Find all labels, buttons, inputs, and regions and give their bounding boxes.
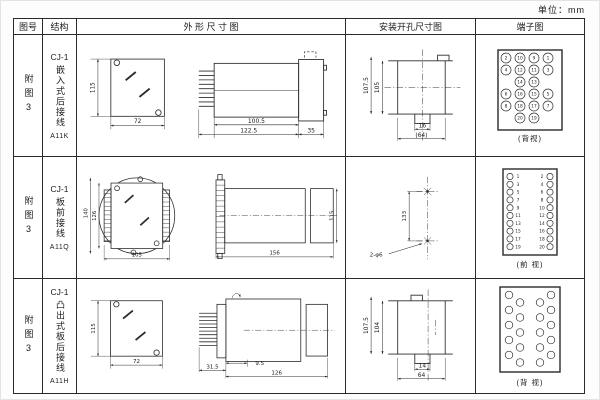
view-label: (前 视) xyxy=(516,259,543,270)
relay-model: CJ-1 xyxy=(51,287,69,297)
terminal-number: 12 xyxy=(539,213,545,219)
screw-icon xyxy=(154,349,159,354)
terminal-number: 13 xyxy=(531,79,537,85)
outline-dimensions-cell: 115 72 9.5 31.5 126 xyxy=(77,279,346,393)
mount-tab xyxy=(324,110,327,115)
terminal-number: 5 xyxy=(547,91,550,97)
dim-label-pin-length: 31.5 xyxy=(206,365,219,371)
terminal-circle xyxy=(507,220,513,226)
dim-label-body-length: 126 xyxy=(271,370,282,376)
terminal-number: 6 xyxy=(541,189,544,195)
dim-label-notch-width: 16 xyxy=(418,123,426,129)
relay-case-front xyxy=(111,59,165,116)
mounting-type: 板前接线 xyxy=(55,197,64,239)
terminal-circle xyxy=(505,351,513,359)
terminal-number: 10 xyxy=(539,205,545,211)
dim-label-inner-height: 105 xyxy=(375,81,381,92)
dim-label-width: 72 xyxy=(134,119,142,125)
terminal-circle xyxy=(547,235,553,241)
terminal-number: 17 xyxy=(515,236,521,242)
terminal-circle xyxy=(516,298,524,306)
terminal-number: 11 xyxy=(515,213,521,219)
hole-spec-label: 2-φ6 xyxy=(369,252,382,258)
figure-number: 附图3 xyxy=(24,74,33,117)
terminal-circle xyxy=(507,181,513,187)
screw-icon xyxy=(114,301,119,306)
screw-icon xyxy=(138,177,143,182)
relay-model: CJ-1 xyxy=(51,52,69,62)
terminal-number: 16 xyxy=(539,228,545,234)
header-mounting-holes: 安装开孔尺寸图 xyxy=(346,19,476,35)
terminal-circle xyxy=(516,358,524,366)
terminal-number: 8 xyxy=(541,197,544,203)
terminal-circle xyxy=(547,173,553,179)
mounting-type: 嵌入式后接线 xyxy=(55,65,64,128)
terminal-circle xyxy=(507,204,513,210)
terminal-circle xyxy=(505,336,513,344)
terminal-pins xyxy=(199,71,214,106)
terminal-number: 15 xyxy=(531,91,537,97)
dim-label-inner-height: 126 xyxy=(92,210,98,221)
terminal-circle xyxy=(536,298,544,306)
dim-label-hole-spacing: 133 xyxy=(401,210,407,221)
terminal-number: 14 xyxy=(539,220,545,226)
model-code: A11H xyxy=(50,378,69,385)
outline-side-view: 100.5 122.5 35 xyxy=(193,48,339,144)
structure-cell: CJ-1 嵌入式后接线 A11K xyxy=(43,35,77,157)
terminal-circle xyxy=(505,321,513,329)
relay-model: CJ-1 xyxy=(51,184,69,194)
dim-label-height: 115 xyxy=(91,81,97,92)
terminal-circle xyxy=(547,220,553,226)
terminal-circle xyxy=(547,189,553,195)
terminal-circle xyxy=(507,173,513,179)
outline-dimensions-cell: 115 72 100.5 122.5 35 xyxy=(77,35,346,157)
cutout-outline xyxy=(388,295,453,363)
relay-case-front xyxy=(111,183,163,248)
socket-plate xyxy=(217,304,226,357)
terminal-number: 4 xyxy=(541,181,544,187)
mounting-hole-diagram: 133 2-φ6 xyxy=(356,170,466,266)
terminal-number: 2 xyxy=(541,174,544,180)
terminal-number: 19 xyxy=(515,244,521,250)
terminal-circle xyxy=(505,291,513,299)
terminal-circle xyxy=(547,306,555,314)
terminal-number: 20 xyxy=(539,244,545,250)
model-code: A11Q xyxy=(50,244,69,251)
terminal-plate xyxy=(498,50,562,130)
terminal-circle xyxy=(547,351,555,359)
mount-tab xyxy=(218,175,222,180)
terminal-number: 7 xyxy=(547,103,550,109)
extension-lines xyxy=(91,59,165,129)
terminal-circle xyxy=(507,189,513,195)
terminal-circle xyxy=(536,313,544,321)
terminal-number: 7 xyxy=(517,197,520,203)
terminal-number: 9 xyxy=(517,205,520,211)
terminal-circle xyxy=(547,228,553,234)
terminal-number: 14 xyxy=(517,79,523,85)
terminal-circle xyxy=(536,343,544,351)
mounting-holes-cell: 107.5 104 14 64 xyxy=(346,279,476,393)
terminal-number: 1 xyxy=(517,174,520,180)
dim-label-inner-height: 104 xyxy=(375,322,381,333)
dim-label-flange-height: 140 xyxy=(83,208,89,219)
terminal-number: 5 xyxy=(517,189,520,195)
terminal-number: 12 xyxy=(517,67,523,73)
header-outline-dimensions: 外 形 尺 寸 图 xyxy=(77,19,346,35)
drawing-sheet: 单位：mm 图号 结构 外 形 尺 寸 图 安装开孔尺寸图 端子图 附图3 CJ… xyxy=(0,0,600,400)
terminal-diagram: 2109141211314136161558181772019 xyxy=(485,48,575,132)
structure-cell: CJ-1 凸出式板后接线 A11H xyxy=(43,279,77,393)
terminal-circle xyxy=(536,358,544,366)
terminal-circle xyxy=(516,343,524,351)
terminal-plate xyxy=(500,287,560,372)
extension-lines xyxy=(407,191,422,240)
terminal-number: 11 xyxy=(531,67,537,73)
header-structure: 结构 xyxy=(43,19,77,35)
dim-label-outer-height: 107.5 xyxy=(363,76,369,93)
terminal-number: 13 xyxy=(515,220,521,226)
mounting-holes-cell: 133 2-φ6 xyxy=(346,157,476,279)
unit-label: 单位：mm xyxy=(538,3,585,16)
terminal-number: 3 xyxy=(517,181,520,187)
dim-label-body-height: 115 xyxy=(330,211,336,221)
terminal-circle xyxy=(507,243,513,249)
mounting-holes-cell: 107.5 105 16 (64) xyxy=(346,35,476,157)
terminal-number: 18 xyxy=(517,103,523,109)
screw-icon xyxy=(156,109,162,115)
outline-front-view: 140 126 105 xyxy=(80,171,192,264)
terminal-circle xyxy=(547,321,555,329)
terminal-number: 9 xyxy=(533,55,536,61)
terminal-strip-hatch xyxy=(104,193,111,240)
dim-label-width: 105 xyxy=(132,253,142,259)
mounting-hole-diagram: 107.5 104 14 64 xyxy=(354,287,468,385)
terminal-circle xyxy=(547,204,553,210)
structure-cell: CJ-1 板前接线 A11Q xyxy=(43,157,77,279)
rear-block xyxy=(299,59,324,120)
screw-icon xyxy=(114,60,120,66)
relay-case-front xyxy=(111,300,163,355)
terminal-circle xyxy=(547,291,555,299)
figure-number-cell: 附图3 xyxy=(14,279,43,393)
terminal-circle xyxy=(507,212,513,218)
terminal-number: 19 xyxy=(531,115,537,121)
terminal-strip-hatch xyxy=(163,193,170,240)
terminal-circle xyxy=(547,181,553,187)
mount-tab xyxy=(218,253,222,258)
figure-number-cell: 附图3 xyxy=(14,35,43,157)
dim-label-width: 72 xyxy=(133,358,140,364)
terminal-number: 4 xyxy=(505,67,508,73)
model-code: A11K xyxy=(50,133,69,140)
terminal-number: 3 xyxy=(547,67,550,73)
terminal-number: 1 xyxy=(547,55,550,61)
flange-hatch xyxy=(216,185,225,248)
terminal-diagram: 1234567891011121314151617181920 xyxy=(485,166,575,258)
terminal-circle xyxy=(547,243,553,249)
terminal-number: 10 xyxy=(517,55,523,61)
dim-label-outer-height: 107.5 xyxy=(363,317,369,334)
cover-hatch-marks xyxy=(126,72,150,97)
dim-label-height: 115 xyxy=(91,322,97,333)
terminal-circle xyxy=(547,212,553,218)
header-figure-number: 图号 xyxy=(14,19,43,35)
dim-label-offset: 9.5 xyxy=(255,361,264,367)
figure-number: 附图3 xyxy=(24,196,33,239)
view-label: (背 视) xyxy=(516,377,543,388)
mounting-hole-diagram: 107.5 105 16 (64) xyxy=(354,47,468,145)
terminal-diagram-cell: 2109141211314136161558181772019 (背视) xyxy=(476,35,584,157)
terminal-number: 18 xyxy=(539,236,545,242)
outline-front-view: 115 72 xyxy=(83,48,183,144)
dim-label-case-length: 100.5 xyxy=(248,117,265,124)
dim-label-cutout-width: 64 xyxy=(417,373,425,379)
terminal-diagram xyxy=(485,285,575,376)
mount-tab xyxy=(324,65,327,70)
cover-hatch-marks xyxy=(123,310,145,340)
dim-label-notch-width: 14 xyxy=(418,363,426,369)
terminal-diagram-cell: 1234567891011121314151617181920 (前 视) xyxy=(476,157,584,279)
terminal-circle xyxy=(547,196,553,202)
outline-dimensions-cell: 140 126 105 156 115 xyxy=(77,157,346,279)
leader-line xyxy=(389,243,422,253)
header-terminal-diagram: 端子图 xyxy=(476,19,584,35)
figure-number: 附图3 xyxy=(24,315,33,358)
hidden-hook-line xyxy=(304,51,316,57)
rotation-arrow xyxy=(232,294,240,298)
mounting-type: 凸出式板后接线 xyxy=(55,300,64,374)
dimension-table: 图号 结构 外 形 尺 寸 图 安装开孔尺寸图 端子图 附图3 CJ-1 嵌入式… xyxy=(13,18,585,394)
view-label: (背视) xyxy=(518,133,542,144)
terminal-number: 8 xyxy=(505,103,508,109)
terminal-number: 16 xyxy=(517,91,523,97)
terminal-circle xyxy=(547,336,555,344)
terminal-circle xyxy=(516,313,524,321)
cutout-outline xyxy=(388,55,453,123)
terminal-diagram-cell: (背 视) xyxy=(476,279,584,393)
dim-label-cutout-width: (64) xyxy=(415,132,427,138)
extension-lines xyxy=(91,300,163,368)
terminal-circle xyxy=(507,228,513,234)
outline-side-view: 156 115 xyxy=(202,171,342,264)
dim-label-total-length: 122.5 xyxy=(240,127,257,134)
terminal-circle xyxy=(505,306,513,314)
outline-side-view: 9.5 31.5 126 xyxy=(192,290,340,382)
dim-label-length: 156 xyxy=(269,251,280,257)
terminal-pins xyxy=(199,313,217,345)
terminal-number: 15 xyxy=(515,228,521,234)
figure-number-cell: 附图3 xyxy=(14,157,43,279)
terminal-number: 17 xyxy=(531,103,537,109)
terminal-circle xyxy=(516,328,524,336)
dim-label-rear-depth: 35 xyxy=(307,127,315,134)
outline-front-view: 115 72 xyxy=(82,290,182,383)
terminal-circle xyxy=(507,196,513,202)
terminal-circle xyxy=(507,235,513,241)
terminal-number: 2 xyxy=(505,55,508,61)
terminal-circle xyxy=(536,328,544,336)
terminal-number: 6 xyxy=(505,91,508,97)
terminal-number: 20 xyxy=(517,115,523,121)
